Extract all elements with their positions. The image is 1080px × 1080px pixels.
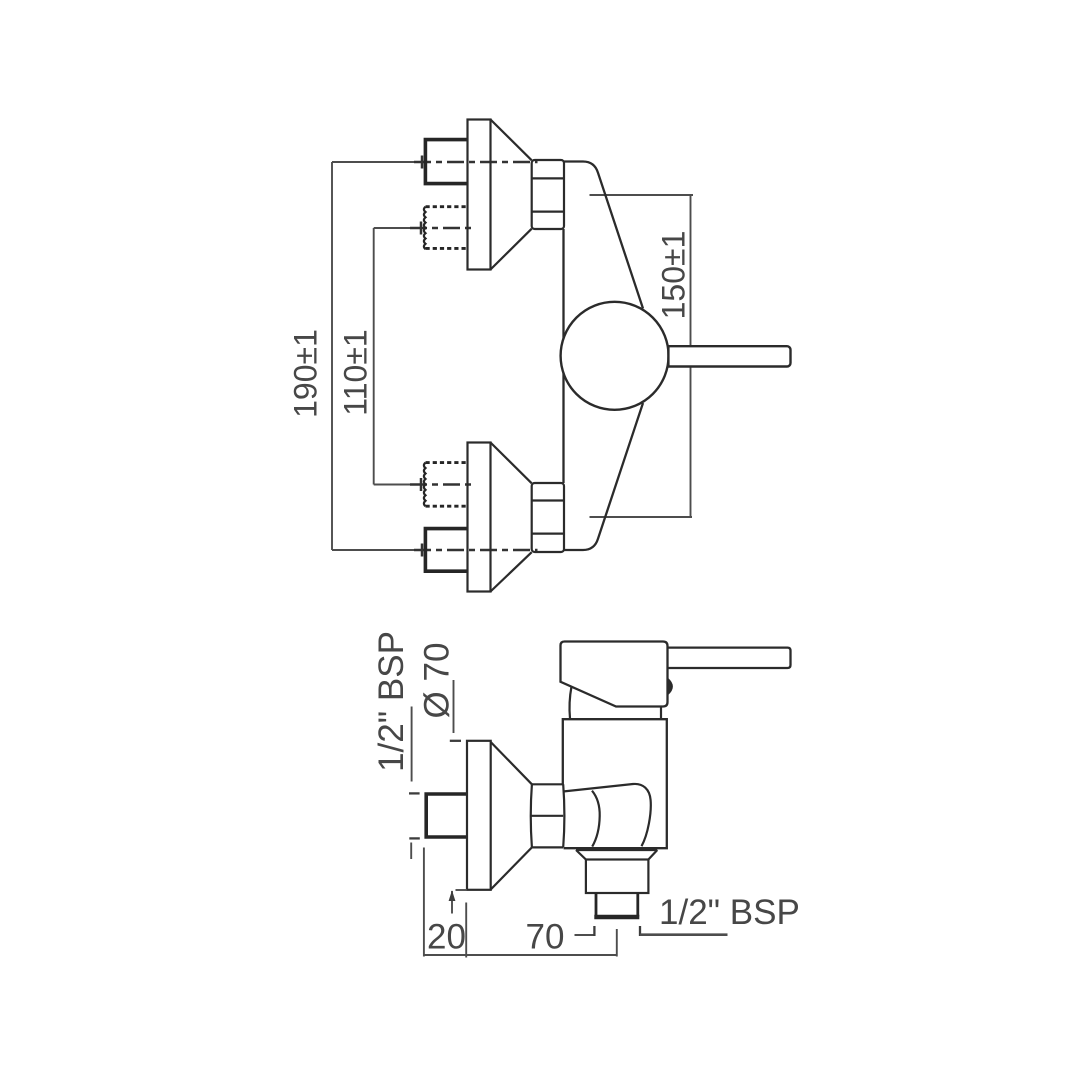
svg-text:150±1: 150±1 [656,231,692,320]
svg-text:1/2" BSP: 1/2" BSP [372,631,411,772]
svg-text:1/2" BSP: 1/2" BSP [659,893,800,932]
svg-text:70: 70 [526,918,565,957]
svg-text:20: 20 [427,918,466,957]
svg-text:Ø 70: Ø 70 [418,643,457,719]
svg-text:190±1: 190±1 [288,329,324,418]
svg-text:110±1: 110±1 [338,329,374,415]
